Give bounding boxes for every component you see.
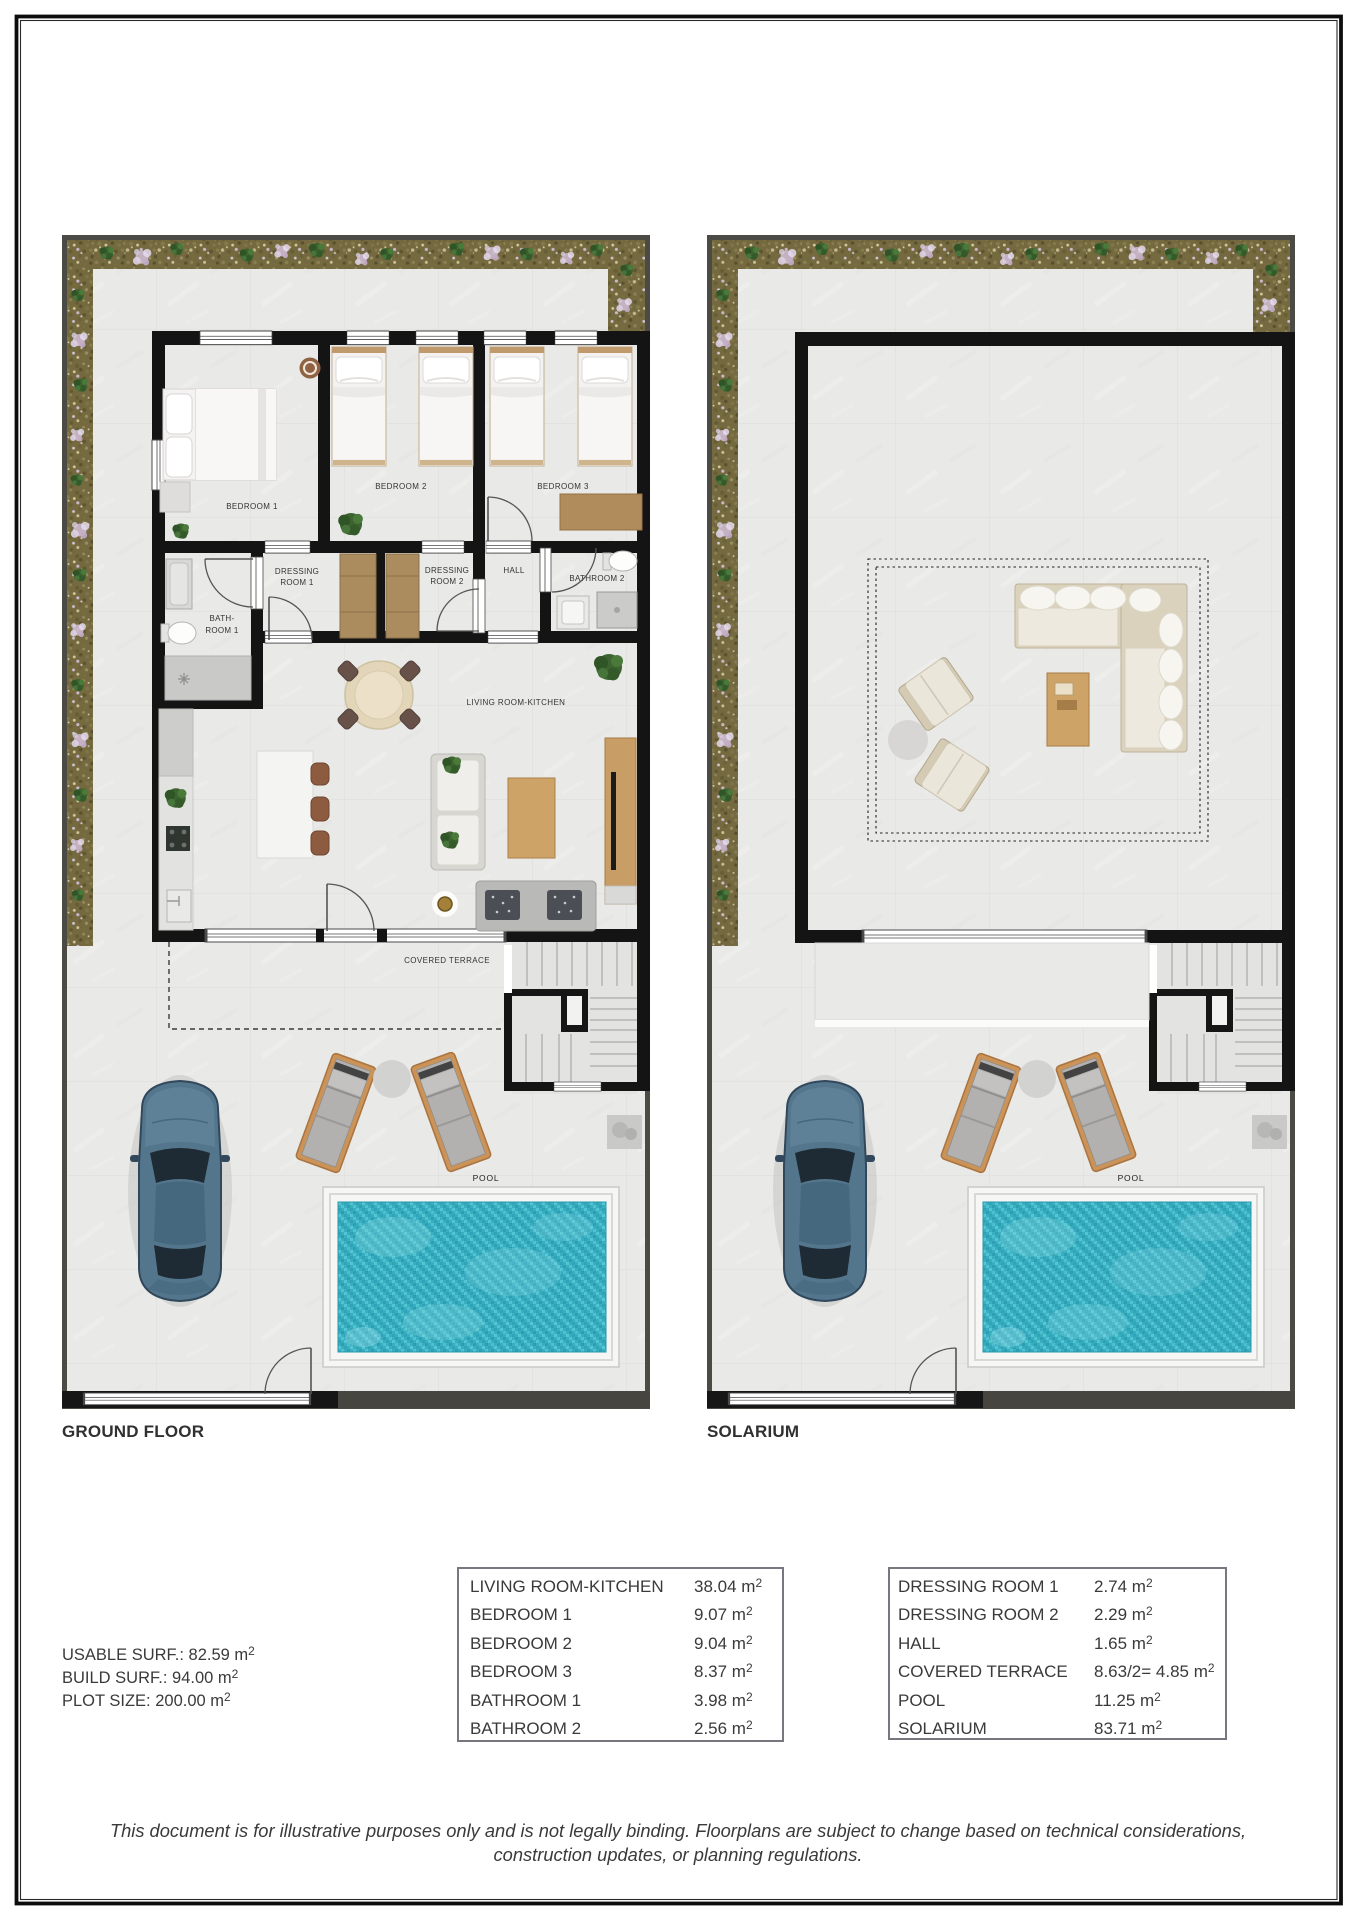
svg-text:BUILD SURF.: 94.00 m2: BUILD SURF.: 94.00 m2 <box>62 1667 239 1687</box>
svg-text:SOLARIUM: SOLARIUM <box>707 1422 799 1441</box>
svg-text:ROOM 1: ROOM 1 <box>280 578 314 587</box>
svg-text:83.71 m2: 83.71 m2 <box>1094 1718 1162 1738</box>
svg-text:POOL: POOL <box>898 1691 945 1710</box>
svg-text:8.63/2= 4.85 m2: 8.63/2= 4.85 m2 <box>1094 1661 1215 1681</box>
svg-text:8.37 m2: 8.37 m2 <box>694 1661 753 1681</box>
svg-text:11.25 m2: 11.25 m2 <box>1094 1690 1161 1710</box>
svg-text:COVERED TERRACE: COVERED TERRACE <box>404 956 490 965</box>
svg-text:ROOM 1: ROOM 1 <box>205 626 239 635</box>
svg-text:HALL: HALL <box>503 566 524 575</box>
svg-text:38.04 m2: 38.04 m2 <box>694 1576 762 1596</box>
svg-text:BATHROOM 2: BATHROOM 2 <box>470 1719 581 1738</box>
svg-text:COVERED TERRACE: COVERED TERRACE <box>898 1662 1068 1681</box>
svg-text:GROUND FLOOR: GROUND FLOOR <box>62 1422 204 1441</box>
svg-text:BEDROOM 3: BEDROOM 3 <box>537 482 589 491</box>
svg-text:ROOM 2: ROOM 2 <box>430 577 464 586</box>
svg-text:USABLE SURF.: 82.59 m2: USABLE SURF.: 82.59 m2 <box>62 1644 255 1664</box>
svg-text:SOLARIUM: SOLARIUM <box>898 1719 987 1738</box>
svg-text:construction updates, or plann: construction updates, or planning regula… <box>494 1844 863 1865</box>
svg-text:DRESSING ROOM 1: DRESSING ROOM 1 <box>898 1577 1059 1596</box>
svg-text:LIVING ROOM-KITCHEN: LIVING ROOM-KITCHEN <box>470 1577 664 1596</box>
svg-text:DRESSING: DRESSING <box>275 567 319 576</box>
svg-text:2.74 m2: 2.74 m2 <box>1094 1576 1153 1596</box>
svg-text:2.56 m2: 2.56 m2 <box>694 1718 753 1738</box>
svg-text:BATHROOM 2: BATHROOM 2 <box>569 574 625 583</box>
svg-text:BEDROOM 3: BEDROOM 3 <box>470 1662 572 1681</box>
svg-text:BATH-: BATH- <box>210 614 235 623</box>
svg-text:BEDROOM 1: BEDROOM 1 <box>226 502 278 511</box>
svg-text:9.04 m2: 9.04 m2 <box>694 1633 753 1653</box>
svg-text:BEDROOM 2: BEDROOM 2 <box>375 482 427 491</box>
svg-text:HALL: HALL <box>898 1634 941 1653</box>
svg-text:BEDROOM 2: BEDROOM 2 <box>470 1634 572 1653</box>
svg-text:1.65 m2: 1.65 m2 <box>1094 1633 1153 1653</box>
svg-text:DRESSING: DRESSING <box>425 566 469 575</box>
svg-text:2.29 m2: 2.29 m2 <box>1094 1604 1153 1624</box>
svg-text:9.07 m2: 9.07 m2 <box>694 1604 753 1624</box>
svg-text:DRESSING ROOM 2: DRESSING ROOM 2 <box>898 1605 1059 1624</box>
svg-text:LIVING ROOM-KITCHEN: LIVING ROOM-KITCHEN <box>467 698 566 707</box>
svg-text:This document is for illustrat: This document is for illustrative purpos… <box>110 1820 1246 1841</box>
svg-text:PLOT SIZE: 200.00 m2: PLOT SIZE: 200.00 m2 <box>62 1690 231 1710</box>
svg-text:3.98 m2: 3.98 m2 <box>694 1690 753 1710</box>
svg-text:BEDROOM 1: BEDROOM 1 <box>470 1605 572 1624</box>
svg-text:BATHROOM 1: BATHROOM 1 <box>470 1691 581 1710</box>
